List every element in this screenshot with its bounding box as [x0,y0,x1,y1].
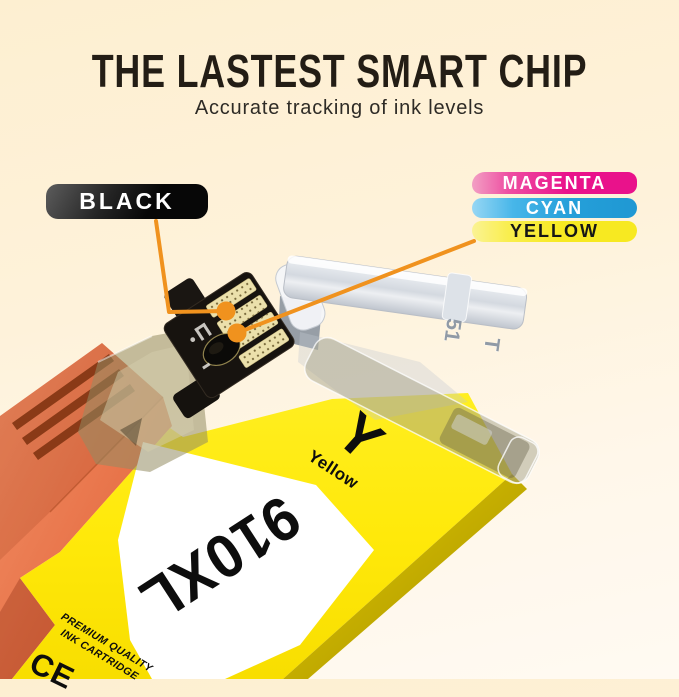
callout-cyan-text: CYAN [526,198,583,219]
clip-marking-number: 51 [438,317,465,343]
chip-pointer-dot-black [217,302,236,321]
callout-yellow-text: YELLOW [510,221,599,242]
chip-pointer-dot-yellow [228,324,247,343]
callout-magenta: MAGENTA [472,172,637,194]
product-infographic: { "title": "THE LASTEST SMART CHIP", "su… [0,0,679,679]
callout-black: BLACK [46,184,208,219]
callout-cyan: CYAN [472,198,637,218]
callout-black-text: BLACK [79,188,175,215]
callout-magenta-text: MAGENTA [503,173,607,194]
headline: THE LASTEST SMART CHIP [75,44,605,98]
callout-yellow: YELLOW [472,221,637,242]
subheadline: Accurate tracking of ink levels [0,97,679,120]
